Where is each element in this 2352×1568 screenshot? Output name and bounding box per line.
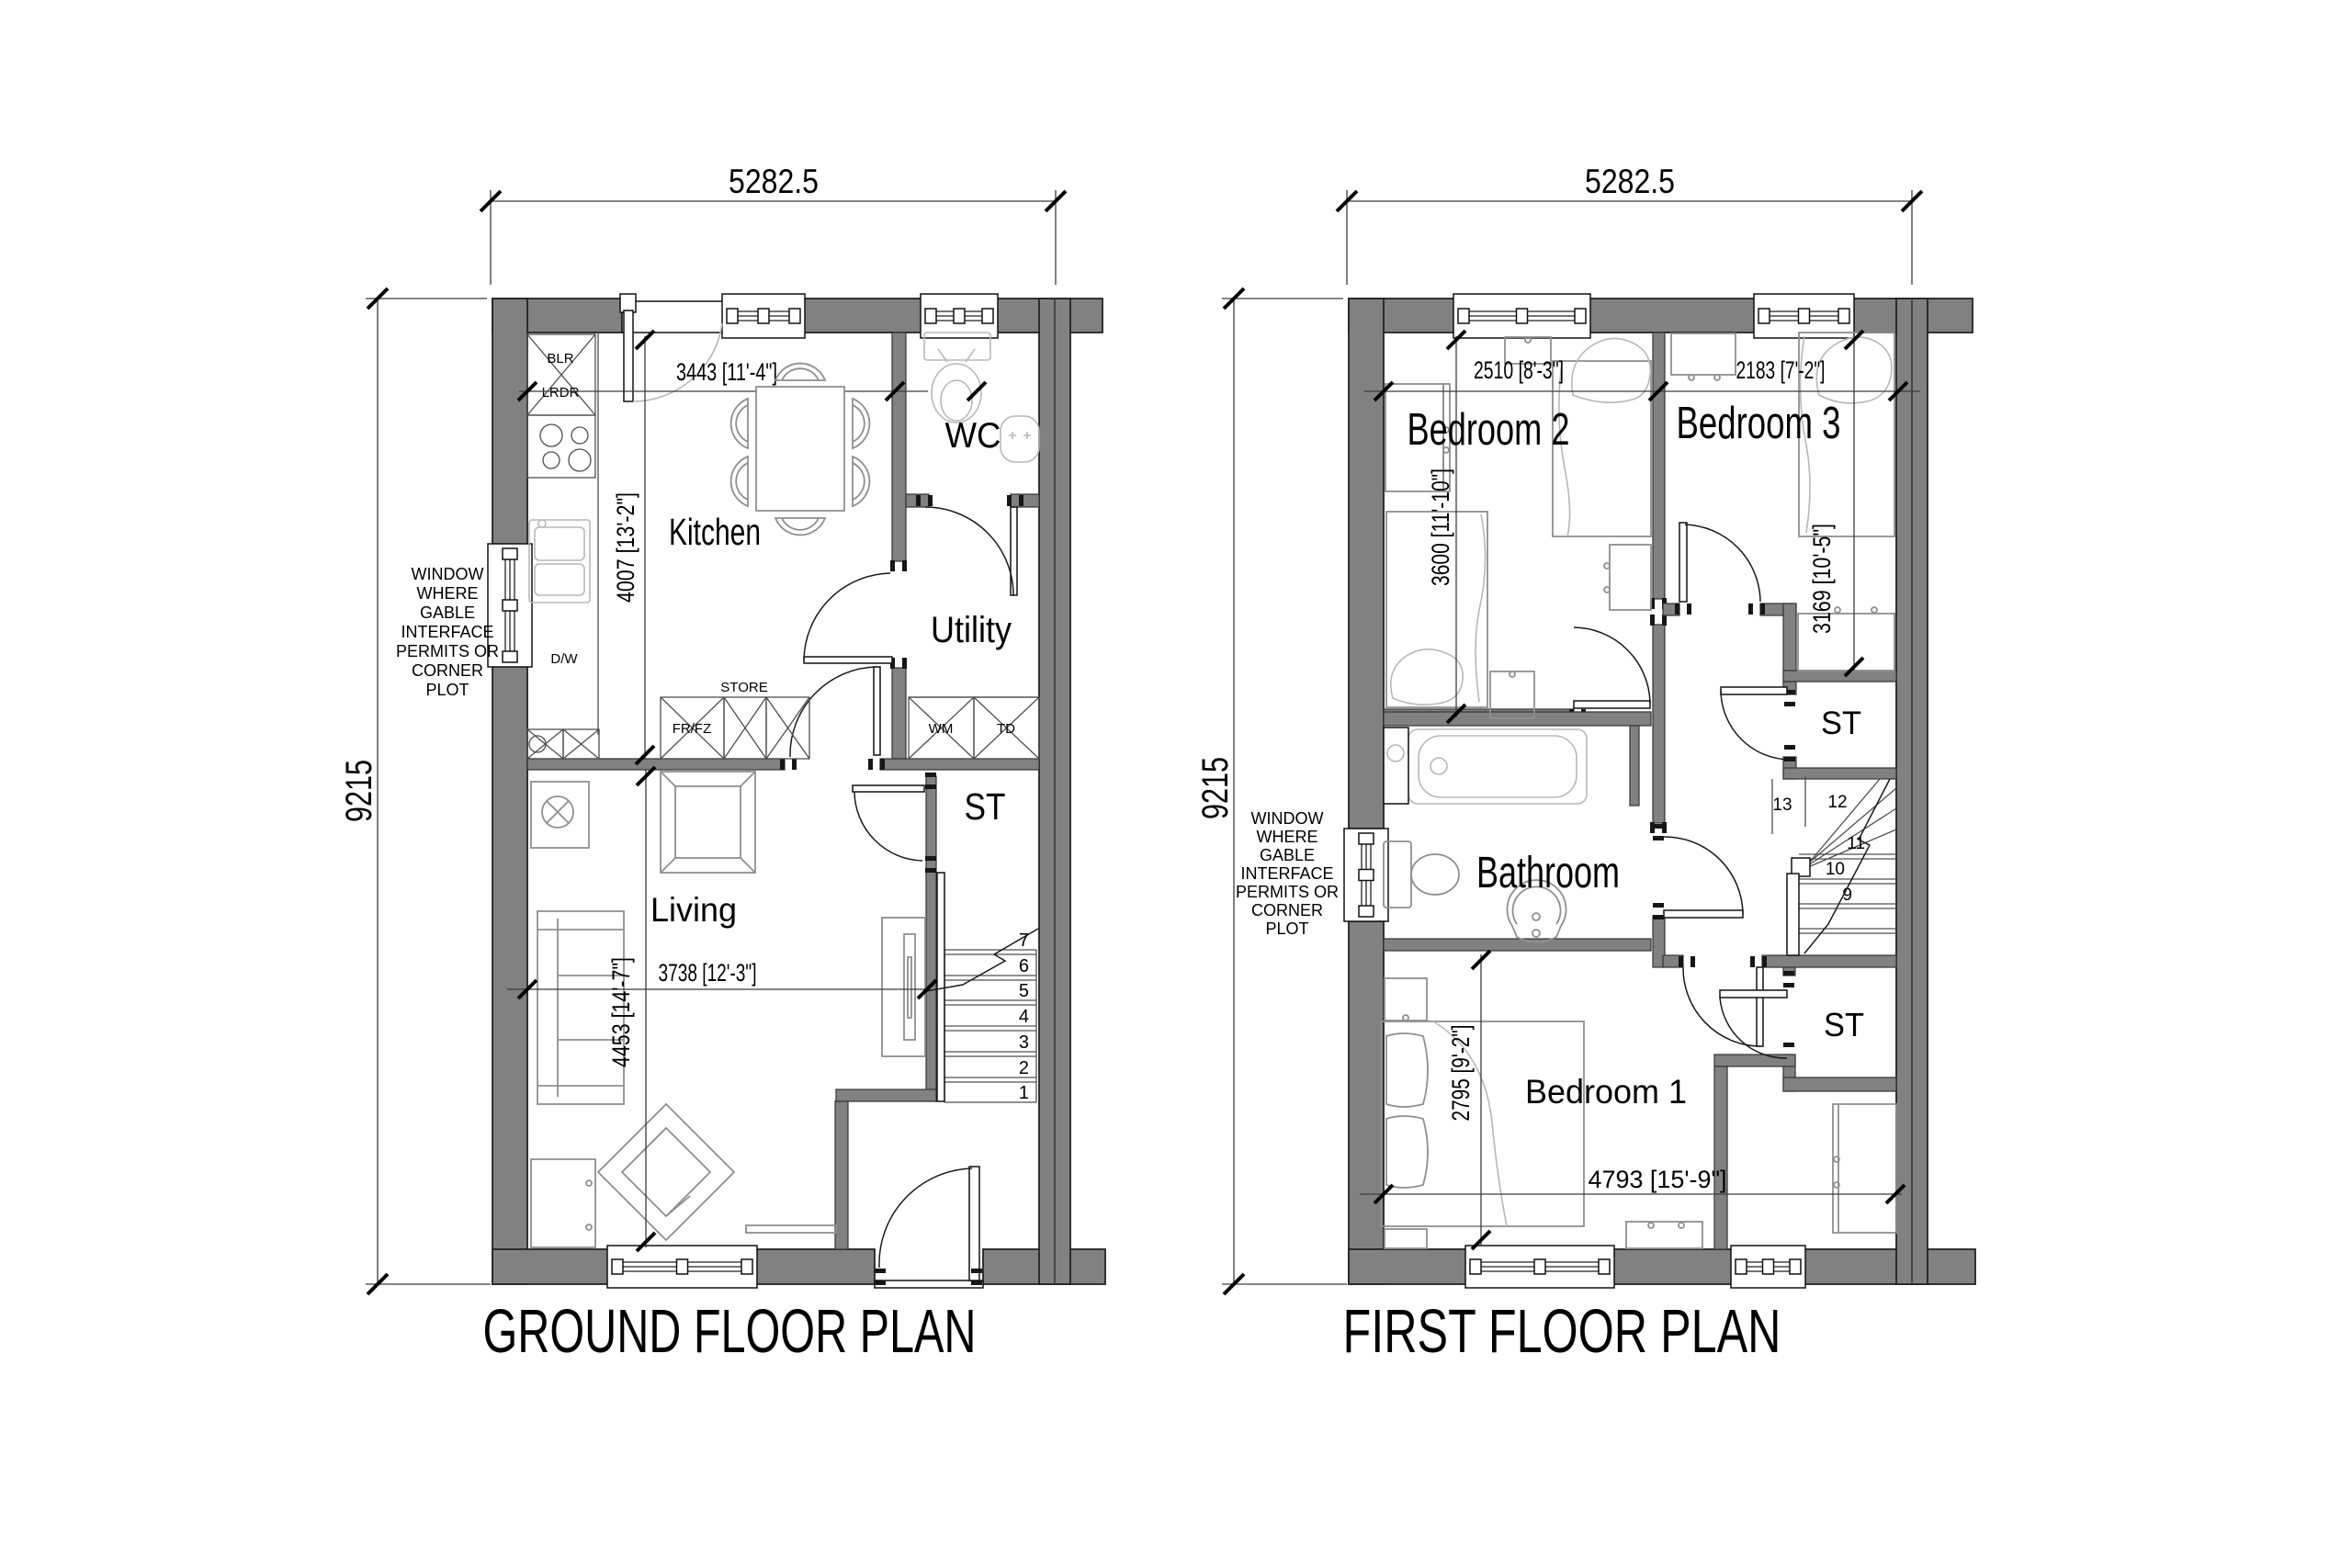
svg-text:12: 12 — [1827, 793, 1847, 812]
svg-text:4007 [13'-2"]: 4007 [13'-2"] — [612, 492, 639, 603]
svg-text:TD: TD — [997, 721, 1015, 737]
svg-text:Kitchen: Kitchen — [669, 511, 761, 553]
svg-text:INTERFACE: INTERFACE — [401, 623, 493, 641]
svg-text:13: 13 — [1772, 795, 1792, 815]
svg-text:Bathroom: Bathroom — [1476, 849, 1620, 897]
svg-text:9215: 9215 — [1195, 757, 1236, 819]
svg-text:4793 [15'-9"]: 4793 [15'-9"] — [1589, 1166, 1727, 1193]
svg-text:INTERFACE: INTERFACE — [1240, 864, 1333, 883]
svg-text:ST: ST — [965, 785, 1006, 828]
svg-text:Bedroom 1: Bedroom 1 — [1525, 1073, 1687, 1111]
svg-text:Bedroom 3: Bedroom 3 — [1677, 399, 1841, 448]
svg-text:PERMITS OR: PERMITS OR — [396, 642, 499, 660]
svg-text:5282.5: 5282.5 — [1585, 162, 1675, 200]
svg-text:3600 [11'-10"]: 3600 [11'-10"] — [1427, 468, 1454, 586]
svg-text:WHERE: WHERE — [1257, 828, 1318, 846]
svg-text:D/W: D/W — [550, 651, 578, 667]
svg-text:ST: ST — [1821, 705, 1861, 741]
svg-text:GABLE: GABLE — [420, 604, 475, 622]
svg-text:4453 [14'-7"]: 4453 [14'-7"] — [607, 957, 635, 1067]
svg-text:Utility: Utility — [931, 610, 1012, 650]
svg-text:WINDOW: WINDOW — [1251, 809, 1324, 828]
svg-text:11: 11 — [1847, 834, 1865, 853]
svg-text:10: 10 — [1826, 860, 1845, 879]
svg-text:Living: Living — [650, 891, 737, 929]
svg-text:4: 4 — [1019, 1007, 1029, 1027]
svg-text:FIRST FLOOR PLAN: FIRST FLOOR PLAN — [1343, 1297, 1781, 1366]
svg-text:WHERE: WHERE — [417, 584, 479, 603]
svg-text:PLOT: PLOT — [425, 681, 469, 699]
svg-text:Bedroom 2: Bedroom 2 — [1408, 405, 1570, 455]
svg-text:7: 7 — [1019, 931, 1029, 951]
svg-text:CORNER: CORNER — [412, 661, 483, 680]
svg-text:STORE: STORE — [720, 680, 767, 695]
svg-text:ST: ST — [1824, 1006, 1864, 1043]
svg-text:BLR: BLR — [547, 351, 573, 367]
svg-text:GROUND FLOOR PLAN: GROUND FLOOR PLAN — [483, 1297, 977, 1366]
svg-text:5282.5: 5282.5 — [729, 162, 819, 200]
svg-text:3: 3 — [1019, 1032, 1029, 1053]
svg-text:FR/FZ: FR/FZ — [673, 721, 712, 737]
svg-text:2795 [9'-2"]: 2795 [9'-2"] — [1447, 1025, 1475, 1122]
svg-text:PERMITS OR: PERMITS OR — [1236, 883, 1339, 901]
svg-text:WC: WC — [945, 416, 1001, 456]
svg-text:LRDR: LRDR — [542, 385, 580, 400]
svg-text:3443 [11'-4"]: 3443 [11'-4"] — [676, 358, 777, 386]
svg-text:3738 [12'-3"]: 3738 [12'-3"] — [659, 959, 757, 987]
svg-text:2: 2 — [1019, 1058, 1029, 1078]
svg-text:5: 5 — [1019, 981, 1029, 1001]
svg-text:PLOT: PLOT — [1265, 919, 1308, 938]
svg-text:GABLE: GABLE — [1260, 846, 1315, 864]
svg-text:CORNER: CORNER — [1251, 901, 1323, 919]
svg-text:6: 6 — [1019, 956, 1029, 976]
svg-text:9215: 9215 — [339, 760, 379, 822]
svg-text:3169 [10'-5"]: 3169 [10'-5"] — [1808, 524, 1836, 634]
svg-text:WM: WM — [929, 721, 954, 737]
svg-text:1: 1 — [1019, 1083, 1029, 1103]
svg-text:2183 [7'-2"]: 2183 [7'-2"] — [1736, 356, 1826, 384]
svg-text:WINDOW: WINDOW — [412, 565, 484, 583]
svg-text:2510 [8'-3"]: 2510 [8'-3"] — [1474, 356, 1564, 384]
